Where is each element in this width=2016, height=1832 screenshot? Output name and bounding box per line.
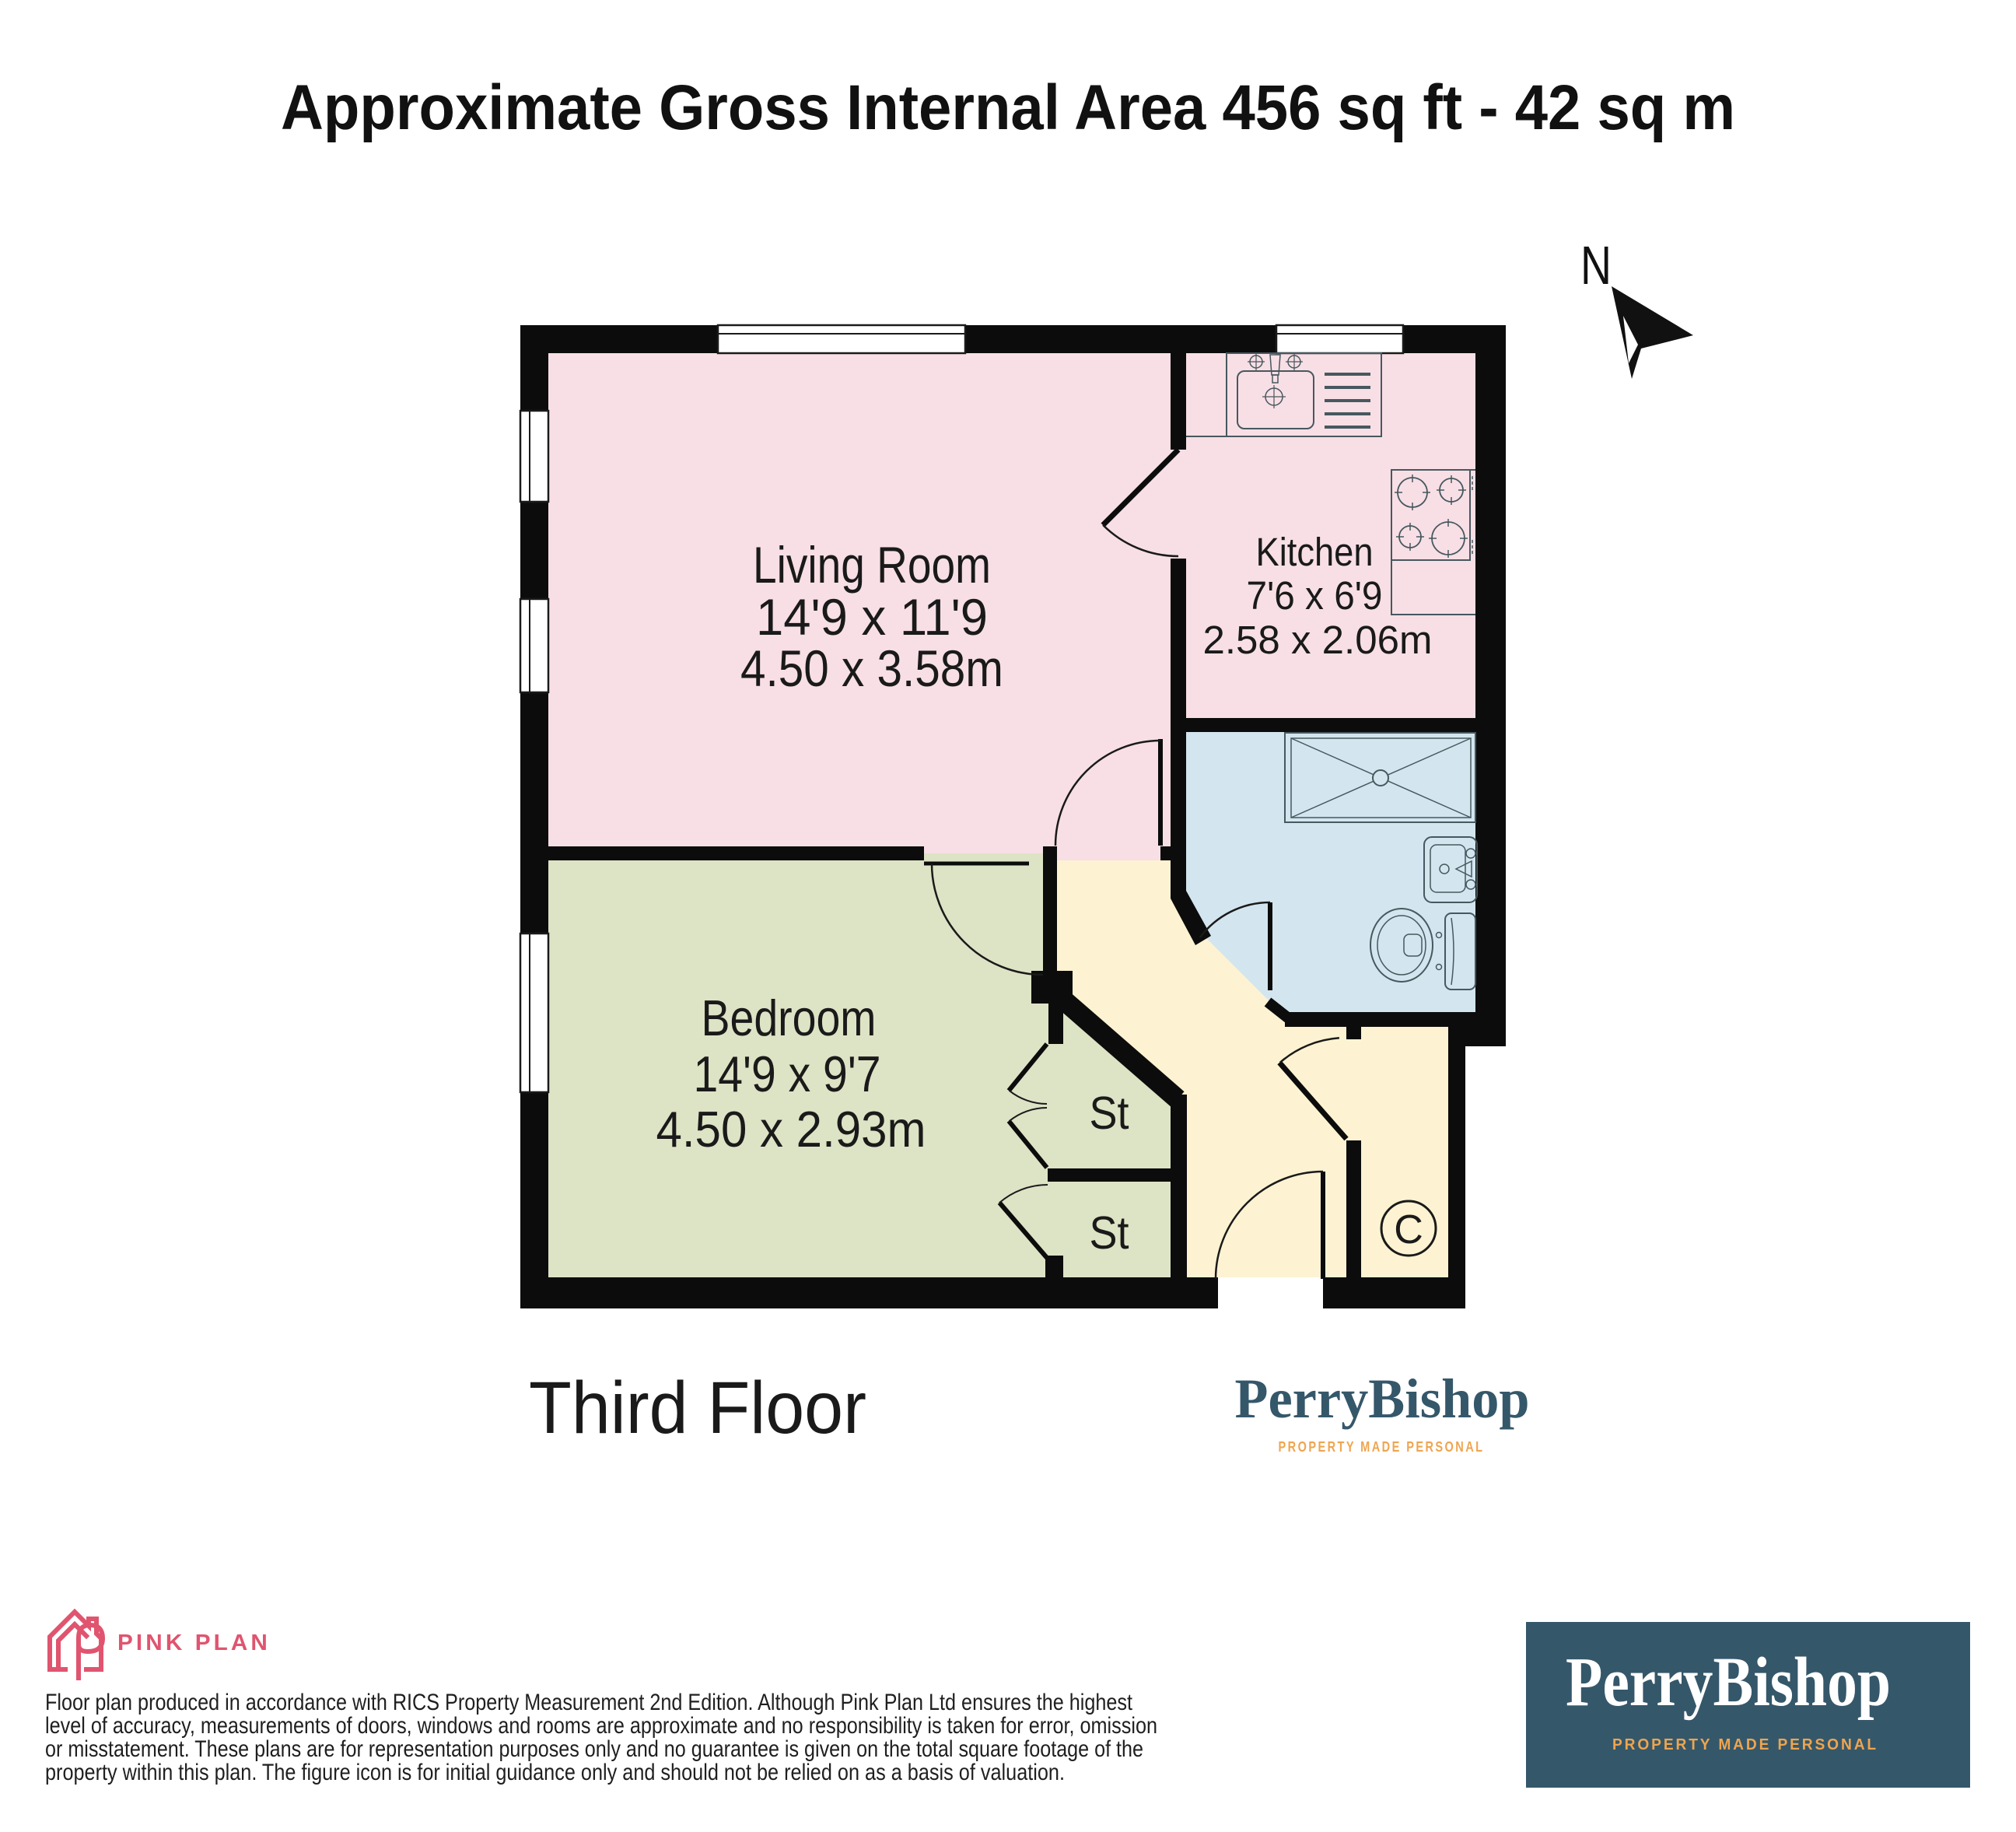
svg-text:Floor plan produced in accorda: Floor plan produced in accordance with R… <box>45 1690 1133 1715</box>
svg-text:4.50 x 2.93m: 4.50 x 2.93m <box>656 1101 926 1158</box>
svg-text:N: N <box>1580 235 1612 296</box>
svg-text:Approximate Gross Internal Are: Approximate Gross Internal Area 456 sq f… <box>281 72 1735 143</box>
svg-text:2.58 x 2.06m: 2.58 x 2.06m <box>1203 618 1433 662</box>
svg-text:Third Floor: Third Floor <box>529 1367 866 1449</box>
svg-text:property within this plan. The: property within this plan. The figure ic… <box>45 1760 1065 1785</box>
svg-text:St: St <box>1090 1207 1129 1259</box>
svg-text:PerryBishop: PerryBishop <box>1235 1368 1530 1430</box>
svg-text:4.50 x 3.58m: 4.50 x 3.58m <box>740 639 1003 697</box>
svg-text:Living Room: Living Room <box>753 536 991 594</box>
svg-text:Kitchen: Kitchen <box>1256 530 1374 574</box>
svg-text:7'6 x 6'9: 7'6 x 6'9 <box>1247 573 1383 618</box>
svg-text:C: C <box>1394 1207 1423 1252</box>
svg-text:PROPERTY MADE PERSONAL: PROPERTY MADE PERSONAL <box>1279 1439 1485 1455</box>
svg-text:PINK PLAN: PINK PLAN <box>117 1631 271 1655</box>
svg-text:St: St <box>1090 1088 1129 1139</box>
svg-text:or misstatement. These plans a: or misstatement. These plans are for rep… <box>45 1736 1143 1762</box>
svg-text:PerryBishop: PerryBishop <box>1566 1644 1891 1721</box>
svg-text:PROPERTY MADE PERSONAL: PROPERTY MADE PERSONAL <box>1612 1736 1878 1753</box>
svg-text:level of accuracy, measurement: level of accuracy, measurements of doors… <box>45 1713 1157 1739</box>
svg-text:Bedroom: Bedroom <box>702 990 877 1046</box>
svg-text:14'9 x 9'7: 14'9 x 9'7 <box>694 1046 881 1102</box>
svg-text:14'9 x 11'9: 14'9 x 11'9 <box>756 588 988 646</box>
